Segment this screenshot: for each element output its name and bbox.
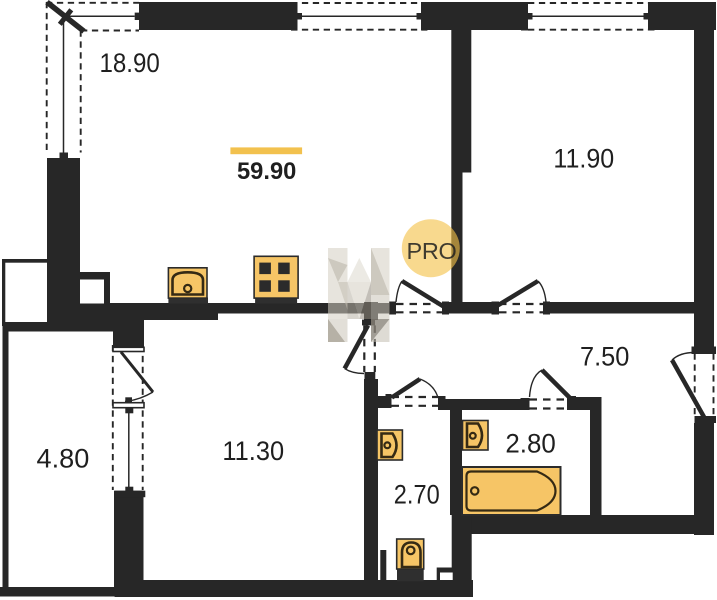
svg-text:11.90: 11.90 [553,144,614,174]
svg-text:PRO: PRO [406,238,456,264]
svg-text:11.30: 11.30 [222,436,284,466]
svg-text:4.80: 4.80 [37,444,90,474]
svg-text:59.90: 59.90 [237,158,296,185]
svg-text:7.50: 7.50 [580,342,629,372]
svg-text:18.90: 18.90 [100,48,160,78]
svg-text:2.70: 2.70 [394,479,440,509]
svg-text:2.80: 2.80 [505,429,555,459]
